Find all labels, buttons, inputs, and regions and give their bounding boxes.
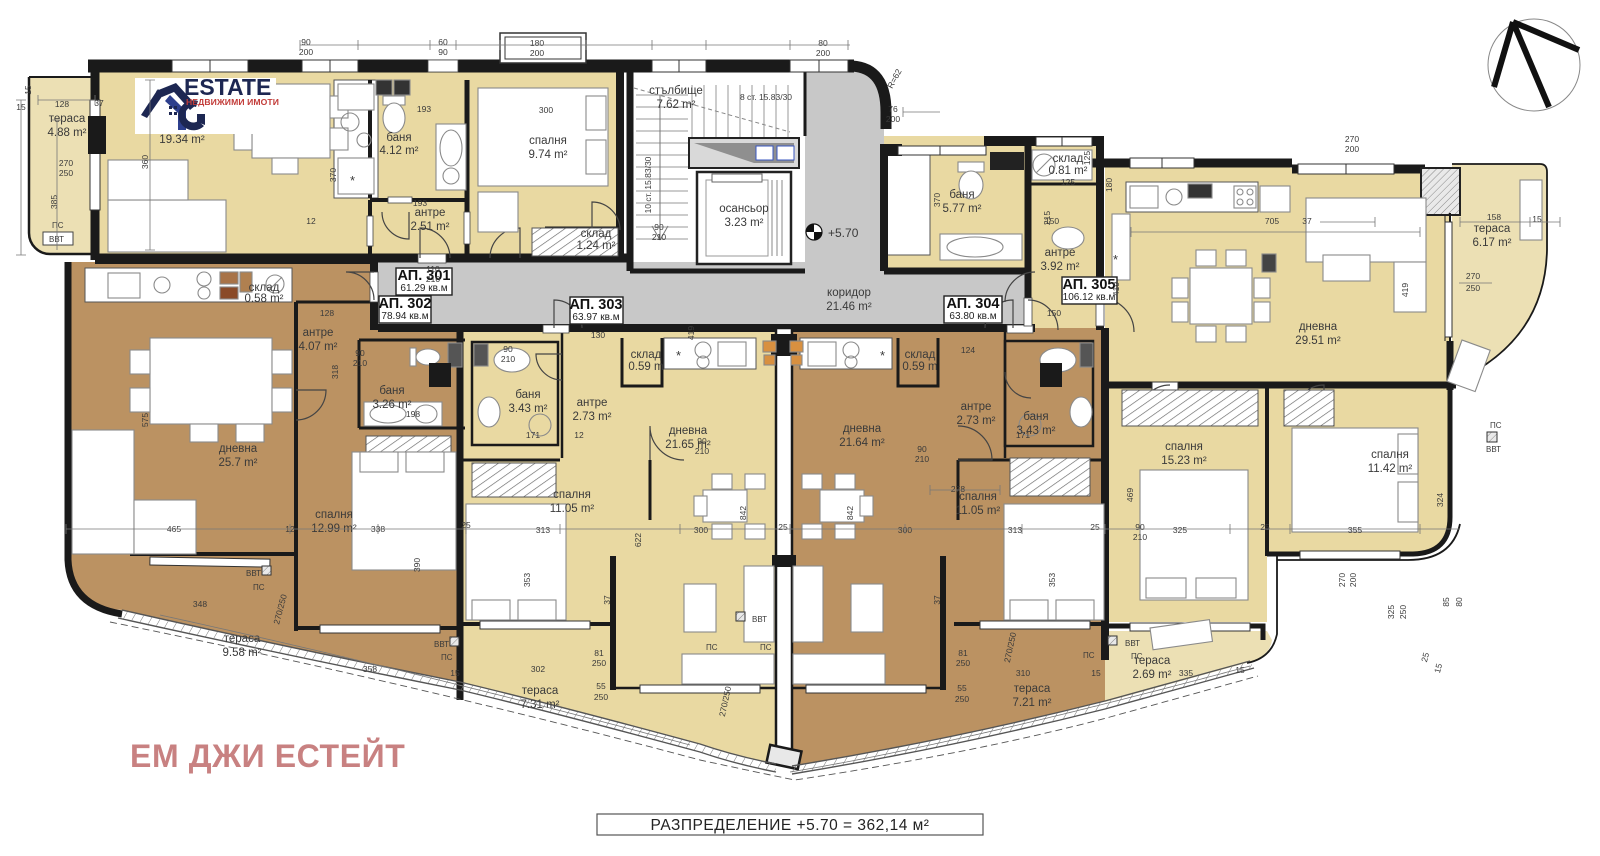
svg-text:НЕДВИЖИМИ ИМОТИ: НЕДВИЖИМИ ИМОТИ [186, 97, 279, 107]
svg-text:стълбище: стълбище [649, 85, 703, 97]
svg-text:150: 150 [1047, 308, 1061, 318]
svg-text:200: 200 [886, 114, 900, 124]
svg-text:0.59 m: 0.59 m [902, 361, 937, 373]
svg-text:осансьор: осансьор [719, 203, 768, 215]
svg-text:баня: баня [386, 132, 411, 144]
svg-text:250: 250 [956, 658, 970, 668]
svg-text:ПС: ПС [1131, 652, 1143, 661]
svg-text:370: 370 [932, 193, 942, 207]
svg-text:348: 348 [193, 599, 207, 609]
svg-text:тераса: тераса [224, 633, 261, 645]
svg-text:2.51 m²: 2.51 m² [411, 221, 450, 233]
svg-text:622: 622 [633, 533, 643, 547]
svg-text:125: 125 [1061, 177, 1075, 187]
svg-text:тераса: тераса [1474, 223, 1511, 235]
svg-text:128: 128 [320, 308, 334, 318]
svg-text:215: 215 [1042, 211, 1052, 225]
svg-text:АП. 304: АП. 304 [947, 296, 1000, 312]
svg-text:335: 335 [1179, 668, 1193, 678]
svg-text:6.17 m²: 6.17 m² [1473, 237, 1512, 249]
svg-text:25.7 m²: 25.7 m² [219, 457, 258, 469]
svg-text:25: 25 [1260, 522, 1270, 532]
svg-text:ВВТ: ВВТ [1486, 445, 1501, 454]
svg-text:210: 210 [1133, 532, 1147, 542]
svg-text:25: 25 [778, 522, 788, 532]
svg-text:12: 12 [574, 430, 584, 440]
svg-text:ЕМ ДЖИ ЕСТЕЙТ: ЕМ ДЖИ ЕСТЕЙТ [130, 738, 405, 774]
svg-text:спалня: спалня [1165, 441, 1203, 453]
svg-text:0.59 m: 0.59 m [628, 361, 663, 373]
svg-text:200: 200 [1345, 144, 1359, 154]
svg-text:200: 200 [816, 48, 830, 58]
svg-text:158: 158 [1487, 212, 1501, 222]
svg-text:ВВТ: ВВТ [434, 640, 449, 649]
svg-text:дневна: дневна [1299, 321, 1338, 333]
svg-text:12: 12 [306, 216, 316, 226]
svg-text:2.73 m²: 2.73 m² [573, 411, 612, 423]
svg-text:15: 15 [1532, 214, 1542, 224]
svg-text:0.58 m²: 0.58 m² [245, 293, 284, 305]
svg-text:419: 419 [1400, 283, 1410, 297]
svg-text:90: 90 [917, 444, 927, 454]
svg-text:спалня: спалня [315, 509, 353, 521]
svg-text:370: 370 [328, 168, 338, 182]
svg-text:325: 325 [1386, 605, 1396, 619]
svg-text:313: 313 [1008, 525, 1022, 535]
svg-text:1.24 m²: 1.24 m² [577, 240, 616, 252]
svg-text:124: 124 [961, 345, 975, 355]
svg-text:250: 250 [592, 658, 606, 668]
svg-text:278: 278 [951, 484, 965, 494]
svg-text:ВВТ: ВВТ [1125, 639, 1140, 648]
svg-text:7.21 m²: 7.21 m² [1013, 697, 1052, 709]
svg-text:324: 324 [1435, 493, 1445, 507]
svg-text:9.58 m²: 9.58 m² [223, 647, 262, 659]
svg-text:193: 193 [417, 104, 431, 114]
svg-text:355: 355 [1348, 525, 1362, 535]
svg-text:4.88 m²: 4.88 m² [48, 127, 87, 139]
svg-text:842: 842 [738, 506, 748, 520]
svg-text:ПС: ПС [52, 221, 64, 230]
svg-text:90: 90 [301, 37, 311, 47]
svg-text:250: 250 [1466, 283, 1480, 293]
svg-text:АП. 303: АП. 303 [570, 297, 623, 313]
svg-text:193: 193 [413, 198, 427, 208]
svg-text:180: 180 [1104, 178, 1114, 192]
svg-text:2.69 m²: 2.69 m² [1133, 669, 1172, 681]
svg-text:РАЗПРЕДЕЛЕНИЕ +5.70 = 362,14 м: РАЗПРЕДЕЛЕНИЕ +5.70 = 362,14 м² [651, 817, 930, 834]
svg-text:антре: антре [415, 207, 446, 219]
svg-text:АП. 301: АП. 301 [398, 268, 451, 284]
svg-text:антре: антре [577, 397, 608, 409]
svg-text:3.92 m²: 3.92 m² [1041, 261, 1080, 273]
svg-text:2.73 m²: 2.73 m² [957, 415, 996, 427]
svg-text:250: 250 [1398, 605, 1408, 619]
svg-text:склад: склад [581, 228, 612, 240]
svg-text:склад: склад [1053, 153, 1084, 165]
svg-text:85: 85 [1441, 597, 1451, 607]
svg-text:125: 125 [1082, 151, 1092, 165]
svg-text:128: 128 [55, 99, 69, 109]
svg-text:842: 842 [845, 506, 855, 520]
svg-text:310: 310 [1016, 668, 1030, 678]
svg-text:353: 353 [1047, 573, 1057, 587]
svg-text:баня: баня [515, 389, 540, 401]
svg-text:358: 358 [363, 664, 377, 674]
svg-text:385: 385 [49, 195, 59, 209]
svg-text:171: 171 [1016, 430, 1030, 440]
svg-text:антре: антре [961, 401, 992, 413]
svg-text:баня: баня [949, 189, 974, 201]
svg-text:11.05 m²: 11.05 m² [550, 503, 595, 515]
svg-text:90: 90 [438, 47, 448, 57]
svg-text:200: 200 [530, 48, 544, 58]
svg-text:дневна: дневна [219, 443, 258, 455]
svg-text:90: 90 [1135, 522, 1145, 532]
svg-text:210: 210 [652, 232, 666, 242]
svg-text:спалня: спалня [529, 135, 567, 147]
svg-text:180: 180 [530, 38, 544, 48]
svg-text:4.07 m²: 4.07 m² [299, 341, 338, 353]
svg-text:318: 318 [330, 365, 340, 379]
svg-text:15: 15 [1091, 668, 1101, 678]
svg-text:ПС: ПС [1490, 421, 1502, 430]
svg-text:270: 270 [1337, 573, 1347, 587]
svg-text:210: 210 [353, 358, 367, 368]
svg-text:90: 90 [654, 222, 664, 232]
svg-text:ПС: ПС [1083, 651, 1095, 660]
svg-text:76: 76 [888, 104, 898, 114]
svg-text:419: 419 [686, 326, 696, 340]
svg-text:353: 353 [522, 573, 532, 587]
svg-text:250: 250 [59, 168, 73, 178]
svg-text:90: 90 [697, 436, 707, 446]
svg-text:210: 210 [501, 354, 515, 364]
svg-text:313: 313 [536, 525, 550, 535]
svg-text:21.64 m²: 21.64 m² [839, 437, 885, 449]
svg-text:300: 300 [694, 525, 708, 535]
svg-text:90: 90 [503, 344, 513, 354]
svg-text:200: 200 [1348, 573, 1358, 587]
svg-text:63.97 кв.м: 63.97 кв.м [572, 312, 619, 323]
svg-text:19.34 m²: 19.34 m² [159, 134, 205, 146]
svg-text:15: 15 [23, 85, 33, 95]
svg-text:80: 80 [818, 38, 828, 48]
svg-text:469: 469 [1125, 488, 1135, 502]
svg-text:3.43 m²: 3.43 m² [509, 403, 548, 415]
svg-text:78.94 кв.м: 78.94 кв.м [381, 311, 428, 322]
svg-text:63.80 кв.м: 63.80 кв.м [949, 311, 996, 322]
svg-text:21.46 m²: 21.46 m² [826, 301, 872, 313]
svg-text:90: 90 [355, 348, 365, 358]
svg-text:390: 390 [412, 558, 422, 572]
svg-text:ПС: ПС [253, 583, 265, 592]
svg-text:55: 55 [957, 683, 967, 693]
svg-text:575: 575 [140, 413, 150, 427]
svg-text:130: 130 [591, 330, 605, 340]
svg-text:25: 25 [1090, 522, 1100, 532]
svg-text:15.23 m²: 15.23 m² [1161, 455, 1207, 467]
svg-text:37: 37 [1302, 216, 1312, 226]
svg-text:11.05 m²: 11.05 m² [956, 505, 1001, 517]
svg-text:коридор: коридор [827, 287, 871, 299]
svg-text:баня: баня [379, 385, 404, 397]
svg-text:*: * [676, 348, 681, 363]
svg-text:80: 80 [1454, 597, 1464, 607]
svg-text:ВВТ: ВВТ [49, 235, 64, 244]
svg-text:270: 270 [1345, 134, 1359, 144]
svg-text:171: 171 [526, 430, 540, 440]
svg-text:210: 210 [695, 446, 709, 456]
svg-text:419: 419 [1111, 282, 1121, 296]
svg-text:*: * [1113, 252, 1118, 267]
svg-text:ПС: ПС [706, 643, 718, 652]
svg-text:37: 37 [932, 595, 942, 605]
svg-text:210: 210 [915, 454, 929, 464]
svg-text:спалня: спалня [1371, 449, 1409, 461]
svg-text:200: 200 [299, 47, 313, 57]
svg-text:37: 37 [94, 98, 104, 108]
svg-text:*: * [880, 348, 885, 363]
svg-text:антре: антре [1045, 247, 1076, 259]
svg-text:300: 300 [539, 105, 553, 115]
svg-text:дневна: дневна [843, 423, 882, 435]
svg-text:ПС: ПС [441, 653, 453, 662]
svg-text:4.12 m²: 4.12 m² [380, 145, 419, 157]
svg-text:баня: баня [1023, 411, 1048, 423]
svg-text:110: 110 [426, 264, 440, 274]
svg-text:250: 250 [955, 694, 969, 704]
svg-text:705: 705 [1265, 216, 1279, 226]
svg-text:81: 81 [594, 648, 604, 658]
svg-text:270: 270 [1466, 271, 1480, 281]
svg-text:61.29 кв.м: 61.29 кв.м [400, 283, 447, 294]
svg-text:склад: склад [905, 349, 936, 361]
svg-text:8 ст. 15.83/30: 8 ст. 15.83/30 [740, 92, 792, 102]
svg-text:антре: антре [303, 327, 334, 339]
svg-text:198: 198 [406, 409, 420, 419]
svg-text:тераса: тераса [1014, 683, 1051, 695]
svg-text:+5.70: +5.70 [828, 226, 859, 240]
svg-text:ВВТ: ВВТ [246, 569, 261, 578]
svg-text:0.81 m²: 0.81 m² [1049, 165, 1088, 177]
svg-text:спалня: спалня [553, 489, 591, 501]
svg-text:3.23 m²: 3.23 m² [725, 217, 764, 229]
svg-text:7.62 m²: 7.62 m² [657, 99, 696, 111]
svg-text:тераса: тераса [49, 113, 86, 125]
svg-text:АП. 302: АП. 302 [379, 296, 432, 312]
svg-text:тераса: тераса [522, 685, 559, 697]
svg-text:60: 60 [438, 37, 448, 47]
svg-text:9.74 m²: 9.74 m² [529, 149, 568, 161]
svg-text:325: 325 [1173, 525, 1187, 535]
svg-text:5.77 m²: 5.77 m² [943, 203, 982, 215]
svg-text:склад: склад [631, 349, 662, 361]
svg-text:15: 15 [450, 668, 460, 678]
svg-text:106.12 кв.м: 106.12 кв.м [1063, 292, 1116, 303]
svg-text:ВВТ: ВВТ [752, 615, 767, 624]
svg-text:250: 250 [594, 692, 608, 702]
svg-text:360: 360 [140, 155, 150, 169]
svg-text:АП. 305: АП. 305 [1063, 277, 1116, 293]
svg-text:302: 302 [531, 664, 545, 674]
svg-text:55: 55 [596, 681, 606, 691]
svg-text:81: 81 [958, 648, 968, 658]
svg-text:11.42 m²: 11.42 m² [1368, 463, 1413, 475]
svg-text:10 ст. 15.83/30: 10 ст. 15.83/30 [643, 156, 653, 213]
svg-text:210: 210 [426, 274, 440, 284]
svg-text:270: 270 [59, 158, 73, 168]
svg-text:29.51 m²: 29.51 m² [1295, 335, 1341, 347]
svg-text:ПС: ПС [760, 643, 772, 652]
svg-text:15: 15 [1235, 665, 1245, 675]
svg-text:*: * [350, 173, 355, 188]
svg-text:37: 37 [602, 595, 612, 605]
